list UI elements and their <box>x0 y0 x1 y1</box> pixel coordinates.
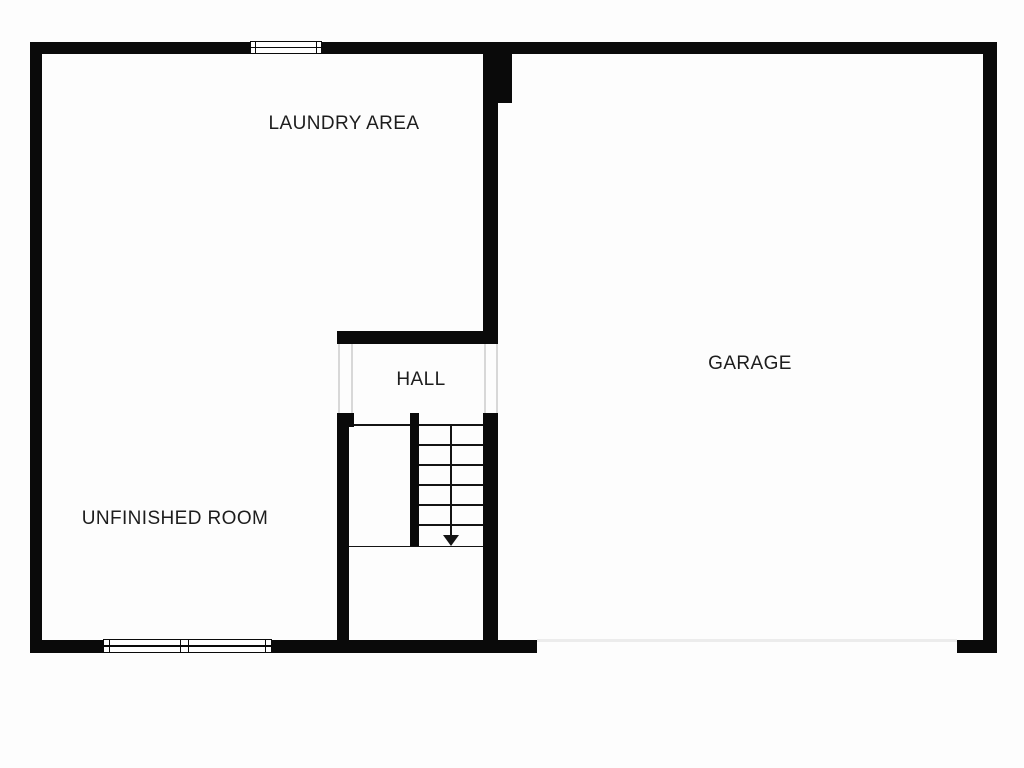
wall-right <box>983 42 997 653</box>
floor-plan: LAUNDRY AREA GARAGE HALL UNFINISHED ROOM <box>0 0 1024 768</box>
wall-divider-garage-upper <box>483 103 498 344</box>
room-label-hall: HALL <box>396 369 445 391</box>
window-bottom <box>103 639 272 653</box>
window-top <box>250 41 322 54</box>
wall-top <box>30 42 997 54</box>
window-mullion <box>180 640 181 652</box>
stair-landing-line <box>349 546 483 548</box>
window-glass-line <box>251 47 321 48</box>
window-jamb <box>265 640 266 652</box>
wall-left <box>30 42 42 653</box>
wall-divider-garage-lower <box>483 413 498 641</box>
wall-stairwell-left <box>337 413 349 641</box>
room-label-laundry-area: LAUNDRY AREA <box>269 113 420 135</box>
wall-hall-top <box>337 331 483 344</box>
stairs-down-arrow-icon <box>443 535 459 546</box>
window-jamb <box>316 42 317 53</box>
room-label-garage: GARAGE <box>708 353 792 375</box>
window-jamb <box>109 640 110 652</box>
room-label-unfinished-room: UNFINISHED ROOM <box>82 508 269 530</box>
wall-bottom-right-segment <box>957 640 997 653</box>
window-mullion <box>188 640 189 652</box>
doorway-hall-garage-jamb <box>496 344 498 413</box>
wall-divider-thick-top <box>483 42 512 103</box>
hall-door-line <box>354 424 410 426</box>
doorway-hall-left-jamb <box>338 344 340 413</box>
window-jamb <box>255 42 256 53</box>
wall-stair-stringer <box>410 413 419 547</box>
garage-door-line <box>537 639 957 642</box>
doorway-hall-garage-jamb <box>484 344 486 413</box>
doorway-hall-left-jamb <box>351 344 353 413</box>
stair-center-line <box>450 425 452 536</box>
